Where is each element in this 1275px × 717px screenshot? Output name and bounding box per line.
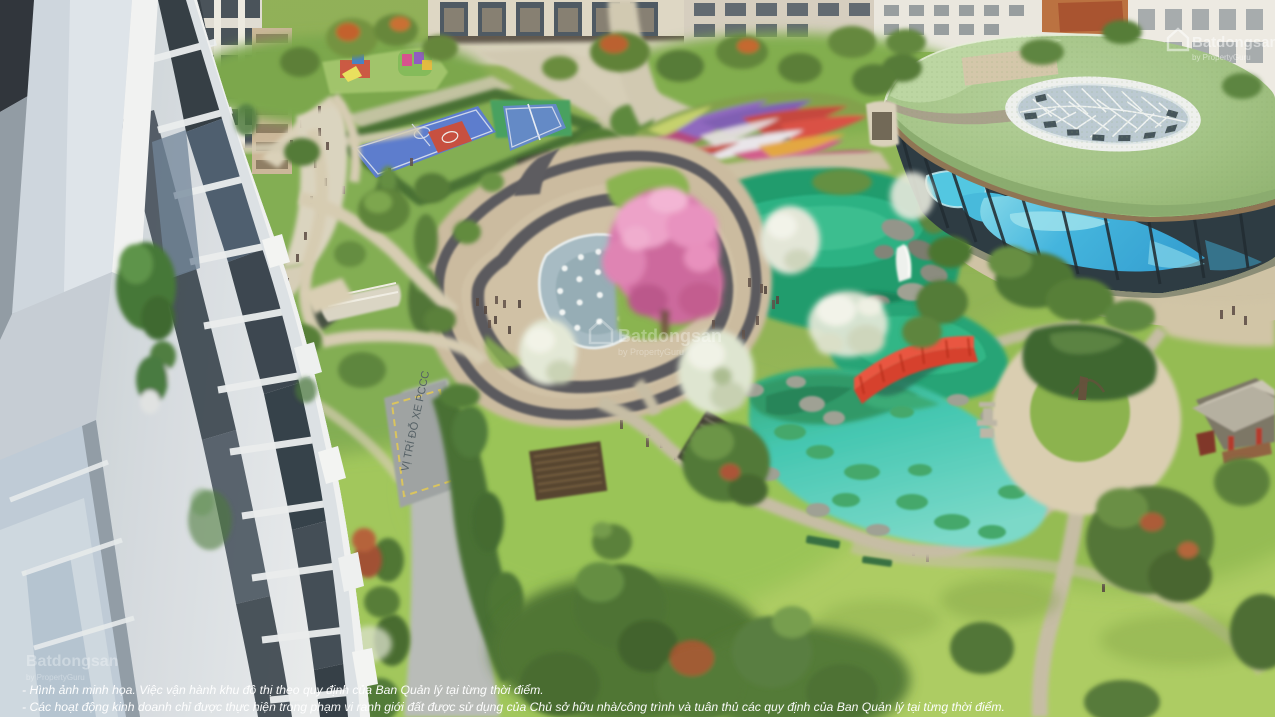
- svg-text:Batdongsan: Batdongsan: [1192, 34, 1275, 51]
- svg-text:by PropertyGuru: by PropertyGuru: [26, 673, 85, 682]
- svg-text:- Hình ảnh minh họa. Việc vận: - Hình ảnh minh họa. Việc vận hành khu đ…: [22, 683, 544, 697]
- svg-text:Batdongsan: Batdongsan: [26, 653, 118, 670]
- svg-text:Batdongsan: Batdongsan: [618, 326, 722, 346]
- svg-text:by PropertyGuru: by PropertyGuru: [1192, 53, 1251, 62]
- svg-text:- Các hoạt động kinh doanh chỉ: - Các hoạt động kinh doanh chỉ được thực…: [22, 700, 1005, 714]
- svg-text:by PropertyGuru: by PropertyGuru: [618, 347, 684, 357]
